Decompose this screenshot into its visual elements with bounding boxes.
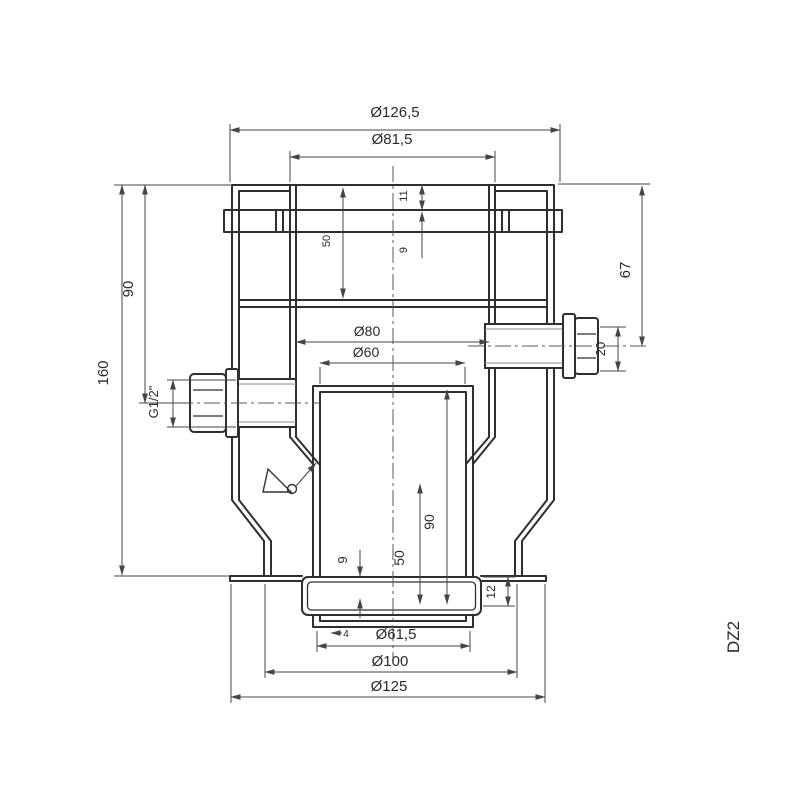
label-dia-mid-outer: Ø80 [354, 323, 381, 339]
label-wall-bottom: 4 [343, 629, 349, 640]
weld-triangle [263, 469, 291, 492]
label-dia-top-outer: Ø126,5 [370, 104, 419, 121]
label-thread-side: G1/2" [146, 385, 161, 418]
bottom-socket-ring [302, 577, 481, 615]
label-height-bottom-ring: 12 [484, 585, 498, 599]
label-height-total: 160 [95, 360, 112, 385]
part-code-label: DZ2 [724, 621, 743, 653]
label-offset-bottom: 9 [335, 556, 350, 563]
label-dia-bottom-mid: Ø100 [372, 653, 409, 670]
label-depth-bottom-socket: 90 [421, 514, 437, 530]
label-height-upper: 90 [120, 281, 137, 298]
label-lip-top: 11 [398, 190, 410, 201]
label-depth-top-socket: 50 [321, 235, 333, 247]
label-dia-bottom-outer: Ø125 [371, 678, 408, 695]
label-height-right-port: 67 [617, 262, 634, 279]
label-dia-top-socket: Ø81,5 [372, 131, 413, 148]
technical-drawing: Ø126,5 Ø81,5 160 90 G1/2" 50 11 9 Ø80 Ø6… [0, 0, 800, 800]
label-len-bottom-sleeve: 50 [391, 550, 407, 566]
drawing-canvas: Ø126,5 Ø81,5 160 90 G1/2" 50 11 9 Ø80 Ø6… [0, 0, 800, 800]
label-dia-mid-inner: Ø60 [353, 344, 380, 360]
label-len-right-port: 20 [593, 342, 608, 356]
weld-symbol [263, 463, 316, 494]
label-dia-bottom-inner: Ø61,5 [376, 626, 417, 643]
label-band-top: 9 [398, 247, 410, 253]
